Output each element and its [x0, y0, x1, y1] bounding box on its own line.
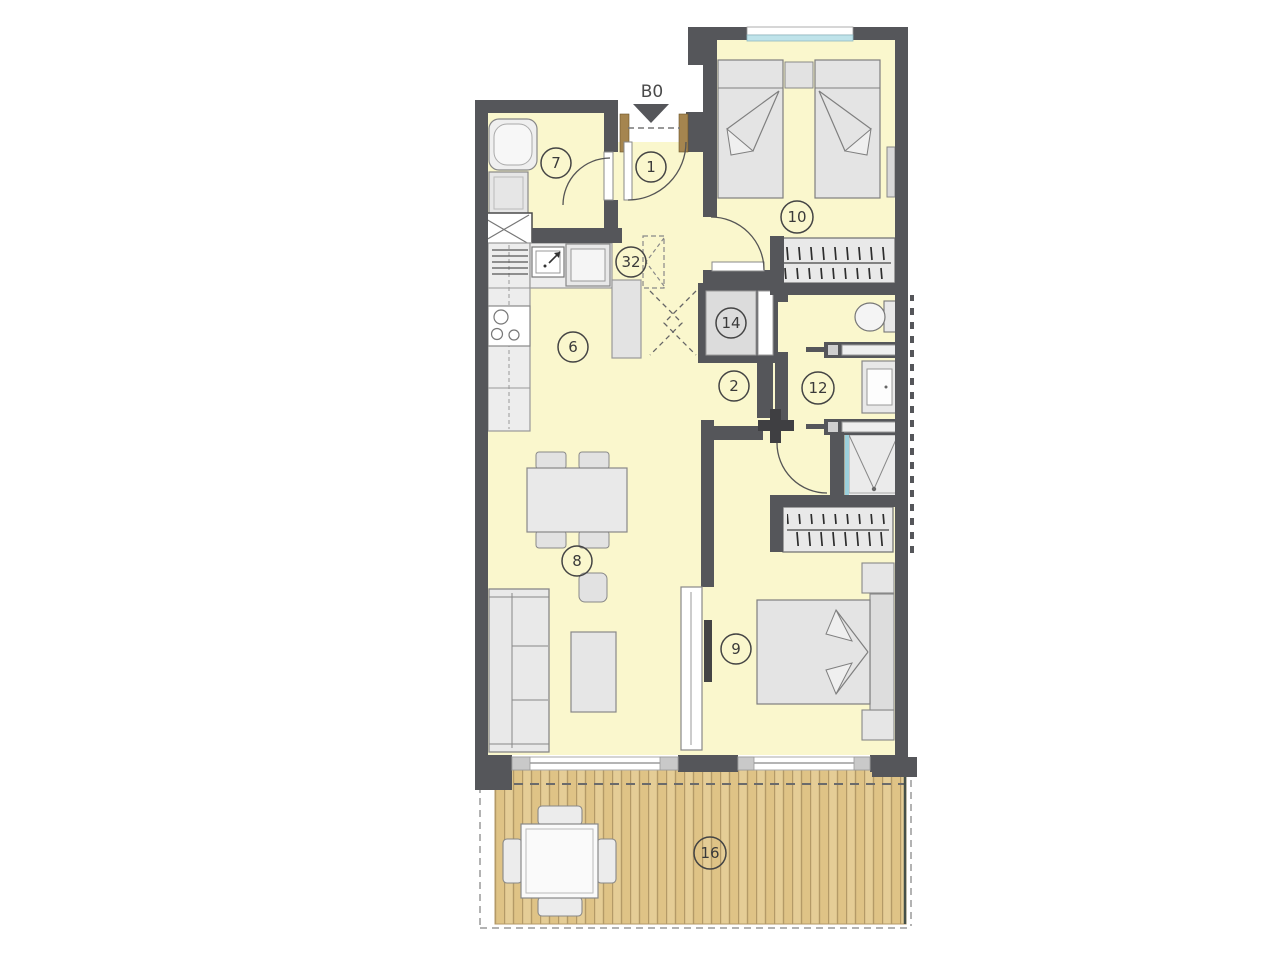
terrace-chair — [538, 806, 582, 825]
headboard — [870, 594, 894, 710]
svg-text:9: 9 — [731, 640, 741, 658]
svg-text:6: 6 — [568, 338, 578, 356]
floor-plan-svg: B0 1 2 6 7 8 9 10 — [0, 0, 1280, 960]
partition-handle — [704, 620, 712, 682]
nightstand — [862, 563, 894, 593]
side-table — [579, 573, 607, 602]
svg-text:14: 14 — [721, 314, 740, 332]
cooktop — [488, 306, 530, 346]
double-bed — [757, 600, 870, 704]
entrance-marker-icon — [633, 104, 669, 123]
kitchen-peninsula — [612, 280, 641, 358]
svg-text:10: 10 — [787, 208, 806, 226]
svg-text:12: 12 — [808, 379, 827, 397]
terrace-table — [521, 824, 598, 898]
window-twin-bedroom — [747, 27, 853, 41]
exterior-wall-texture — [908, 295, 914, 555]
nightstand-center — [785, 62, 813, 88]
block-label: B0 — [641, 82, 663, 102]
dining-chair — [536, 452, 566, 469]
radiator — [887, 147, 895, 197]
dining-table — [527, 468, 627, 532]
dining-chair — [536, 531, 566, 548]
sofa — [489, 589, 549, 752]
terrace-chair — [597, 839, 616, 883]
svg-text:32: 32 — [621, 253, 640, 271]
terrace-sliding-door-bedroom — [738, 757, 870, 770]
svg-text:2: 2 — [729, 377, 739, 395]
coffee-table — [571, 632, 616, 712]
svg-text:8: 8 — [572, 552, 582, 570]
terrace-chair — [503, 839, 522, 883]
floor-plan: B0 1 2 6 7 8 9 10 — [0, 0, 1280, 960]
svg-text:16: 16 — [700, 844, 719, 862]
shower — [845, 431, 902, 497]
svg-text:1: 1 — [646, 158, 656, 176]
svg-text:7: 7 — [551, 154, 561, 172]
terrace-chair — [538, 897, 582, 916]
wardrobe-twin-bedroom — [775, 238, 895, 283]
wardrobe-main-bedroom — [783, 507, 893, 552]
vanity-sink — [489, 172, 528, 214]
toilet — [855, 303, 885, 331]
terrace-sliding-door-living — [512, 757, 678, 770]
toilet-tank — [884, 301, 896, 332]
dining-chair — [579, 531, 609, 548]
nightstand — [862, 710, 894, 740]
dining-chair — [579, 452, 609, 469]
